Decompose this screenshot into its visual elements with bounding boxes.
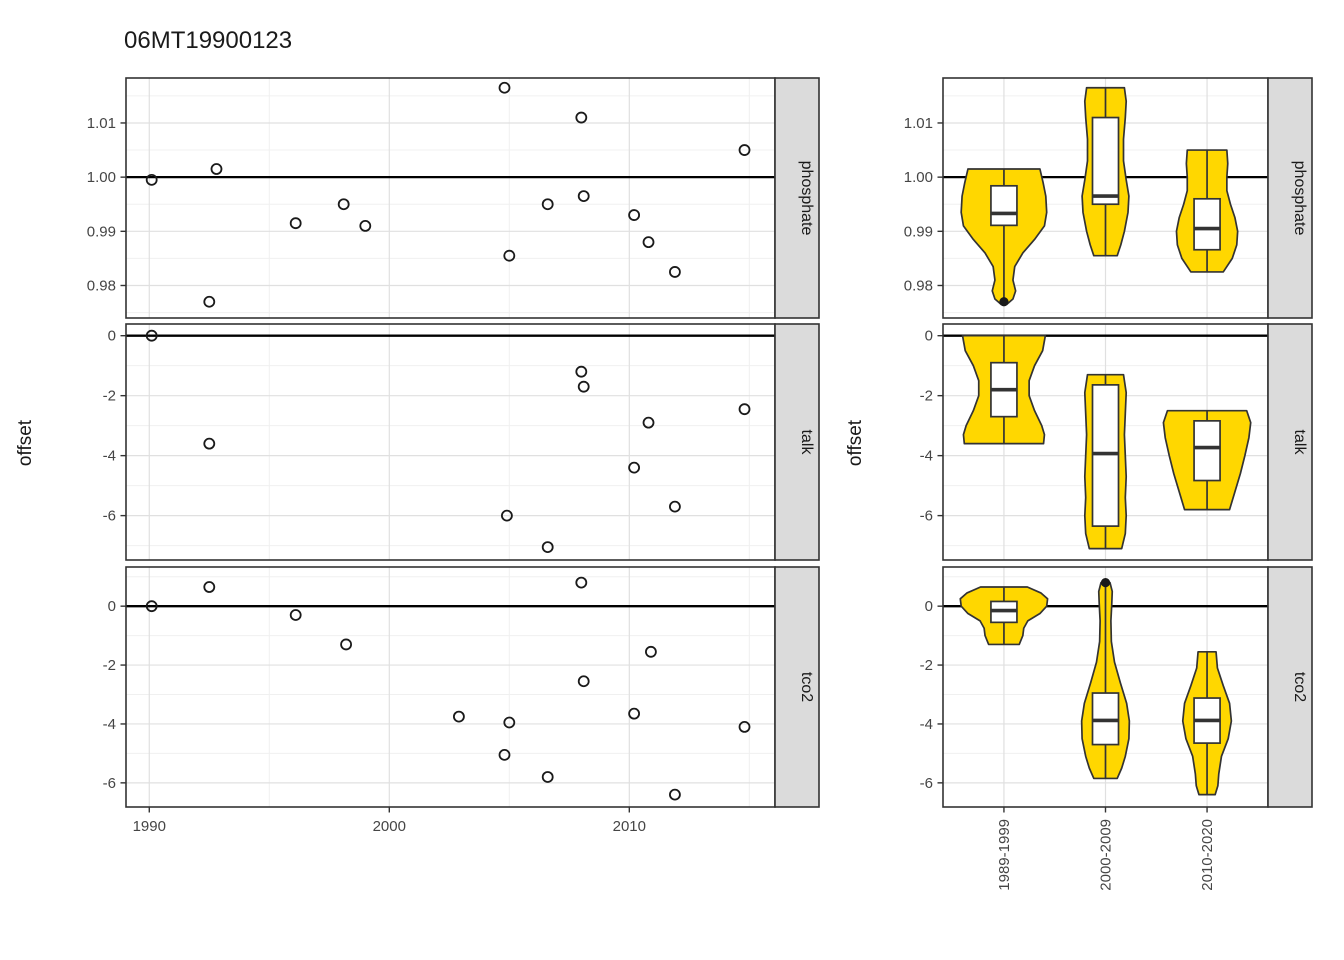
outlier-point [1101,578,1110,587]
panels-group: phosphate0.980.991.001.01talk0-2-4-6tco2… [87,78,1312,891]
panel-phosphate-left: phosphate0.980.991.001.01 [87,78,819,318]
facet-strip-label: phosphate [1291,161,1308,236]
facet-strip-label: talk [1291,430,1308,456]
y-tick-label: 0.99 [87,223,116,240]
y-tick-label: 1.00 [904,169,933,186]
panel-background [126,324,775,560]
box [1093,118,1119,205]
box [1194,199,1220,250]
faceted-offset-chart: 06MT19900123 offset offset phosphate0.98… [0,0,1344,960]
y-tick-label: -6 [920,508,933,525]
y-tick-label: 1.01 [87,115,116,132]
y-tick-label: -6 [103,508,116,525]
y-axis-title-right: offset [845,419,866,466]
panel-talk-right: talk0-2-4-6 [920,324,1312,560]
y-tick-label: -4 [920,448,933,465]
box [1093,385,1119,526]
box [1194,421,1220,481]
chart-title: 06MT19900123 [124,27,292,54]
panel-background [126,567,775,807]
y-tick-label: 1.01 [904,115,933,132]
panel-tco2-left: tco20-2-4-6199020002010 [103,567,819,835]
y-tick-label: -4 [103,716,116,733]
y-tick-label: 1.00 [87,169,116,186]
y-axis-title-left: offset [15,419,36,466]
y-tick-label: -4 [920,716,933,733]
y-tick-label: 0.98 [904,277,933,294]
panel-tco2-right: tco20-2-4-61989-19992000-20092010-2020 [920,567,1312,891]
x-tick-label: 2000 [373,818,406,835]
y-tick-label: -2 [103,388,116,405]
y-tick-label: -2 [920,388,933,405]
y-tick-label: 0 [108,598,116,615]
outlier-point [999,297,1008,306]
y-tick-label: -6 [920,775,933,792]
facet-strip-label: tco2 [798,672,815,702]
y-tick-label: 0 [925,328,933,345]
x-tick-label: 2010 [613,818,646,835]
panel-phosphate-right: phosphate0.980.991.001.01 [904,78,1312,318]
facet-strip-label: talk [798,430,815,456]
y-tick-label: -6 [103,775,116,792]
y-tick-label: 0 [108,328,116,345]
facet-strip-label: phosphate [798,161,815,236]
y-tick-label: -2 [920,657,933,674]
x-category-label: 1989-1999 [996,819,1013,891]
y-tick-label: 0.99 [904,223,933,240]
x-category-label: 2000-2009 [1098,819,1115,891]
x-tick-label: 1990 [133,818,166,835]
figure: 06MT19900123 offset offset phosphate0.98… [0,0,1344,960]
y-tick-label: 0 [925,598,933,615]
box [991,186,1017,226]
panel-background [126,78,775,318]
y-tick-label: -4 [103,448,116,465]
panel-talk-left: talk0-2-4-6 [103,324,819,560]
x-category-label: 2010-2020 [1199,819,1216,891]
y-tick-label: 0.98 [87,277,116,294]
facet-strip-label: tco2 [1291,672,1308,702]
y-tick-label: -2 [103,657,116,674]
